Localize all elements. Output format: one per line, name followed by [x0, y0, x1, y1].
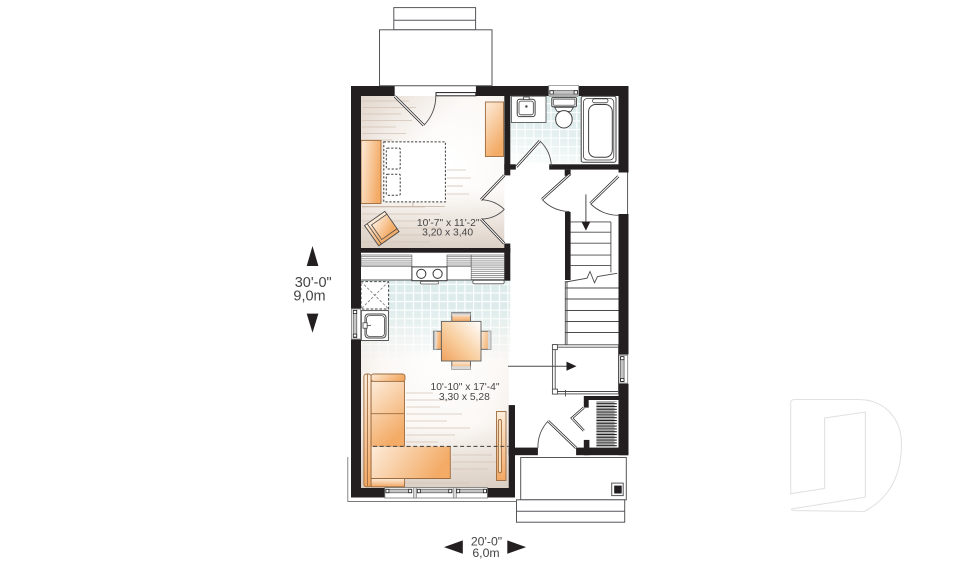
svg-text:6,0m: 6,0m: [472, 546, 499, 560]
svg-text:3,20 x 3,40: 3,20 x 3,40: [422, 227, 473, 238]
svg-text:3,30 x 5,28: 3,30 x 5,28: [439, 392, 490, 403]
svg-text:9,0m: 9,0m: [293, 289, 325, 305]
